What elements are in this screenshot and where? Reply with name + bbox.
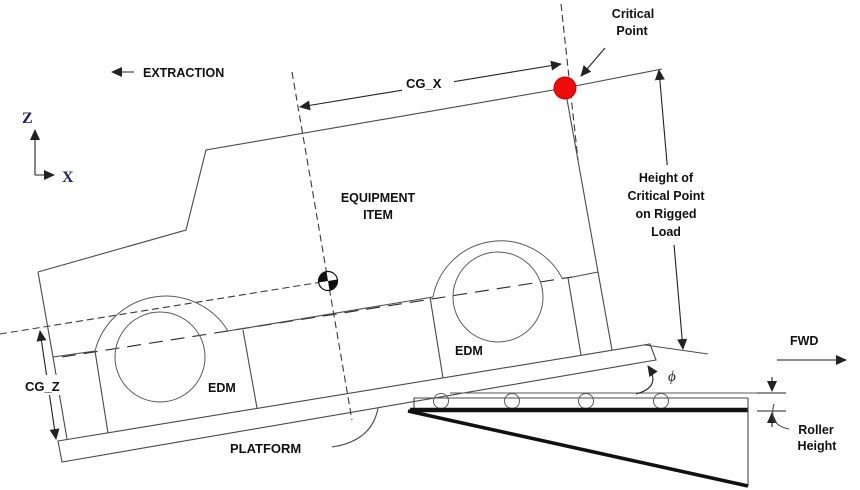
cg-horizontal-dashed-line: [0, 281, 328, 334]
critical-point-annotation: Critical Point: [554, 7, 654, 99]
extraction-label: EXTRACTION: [143, 66, 224, 80]
roller-height-label-2: Height: [798, 439, 838, 453]
critical-point-label-2: Point: [616, 24, 648, 38]
ramp-and-rollers: [408, 393, 786, 486]
extraction-annotation: EXTRACTION: [112, 66, 224, 80]
fwd-annotation: FWD: [777, 334, 846, 360]
front-wheel: [115, 312, 205, 402]
top-reference-line: [565, 69, 662, 88]
roller: [505, 394, 520, 409]
fwd-label: FWD: [790, 334, 818, 348]
equipment-item-outline: [38, 88, 612, 439]
roller-height-label-1: Roller: [798, 423, 834, 437]
height-label-1: Height of: [639, 171, 694, 185]
extraction-rigging-diagram: Z X EXTRACTION FWD CG_X CG_Z Height of C…: [0, 0, 860, 490]
rear-wheel: [453, 252, 543, 342]
critical-point-label-1: Critical: [612, 7, 654, 21]
cg-symbol: [317, 270, 339, 292]
phi-angle-annotation: ϕ: [636, 366, 676, 394]
height-label-2: Critical Point: [627, 189, 705, 203]
axis-z-label: Z: [22, 110, 33, 127]
roller-height-leader: [773, 404, 789, 429]
platform-label: PLATFORM: [230, 441, 301, 456]
height-label-4: Load: [651, 225, 681, 239]
height-dimension: Height of Critical Point on Rigged Load: [565, 69, 717, 354]
phi-label: ϕ: [668, 369, 676, 385]
cg-x-label: CG_X: [406, 76, 442, 91]
roller: [654, 394, 669, 409]
roller-height-dimension: Roller Height: [757, 377, 837, 453]
edm-front-label: EDM: [208, 381, 236, 395]
roller: [579, 394, 594, 409]
cg-z-label: CG_Z: [25, 379, 60, 394]
coordinate-axes: Z X: [22, 110, 74, 186]
cg-x-dimension: CG_X: [300, 64, 561, 107]
axis-x-label: X: [62, 169, 74, 186]
equipment-item-label-1: EQUIPMENT: [341, 191, 416, 205]
platform-annotation: PLATFORM: [230, 408, 378, 456]
platform-leader: [332, 408, 378, 447]
bottom-reference-line: [645, 345, 708, 354]
height-label-3: on Rigged: [635, 207, 696, 221]
phi-arc-arrow: [636, 366, 653, 394]
front-fender-arc: [95, 296, 228, 351]
ramp-deck-top: [414, 398, 748, 409]
edm-rear-label: EDM: [455, 344, 483, 358]
cg-vertical-dashed-line: [292, 72, 352, 420]
ramp-hypotenuse: [408, 411, 748, 486]
critical-point-leader: [581, 48, 605, 76]
critical-point-dot: [554, 77, 576, 99]
roller: [434, 394, 449, 409]
construction-lines: [0, 4, 578, 420]
equipment-item-label-2: ITEM: [363, 208, 393, 222]
